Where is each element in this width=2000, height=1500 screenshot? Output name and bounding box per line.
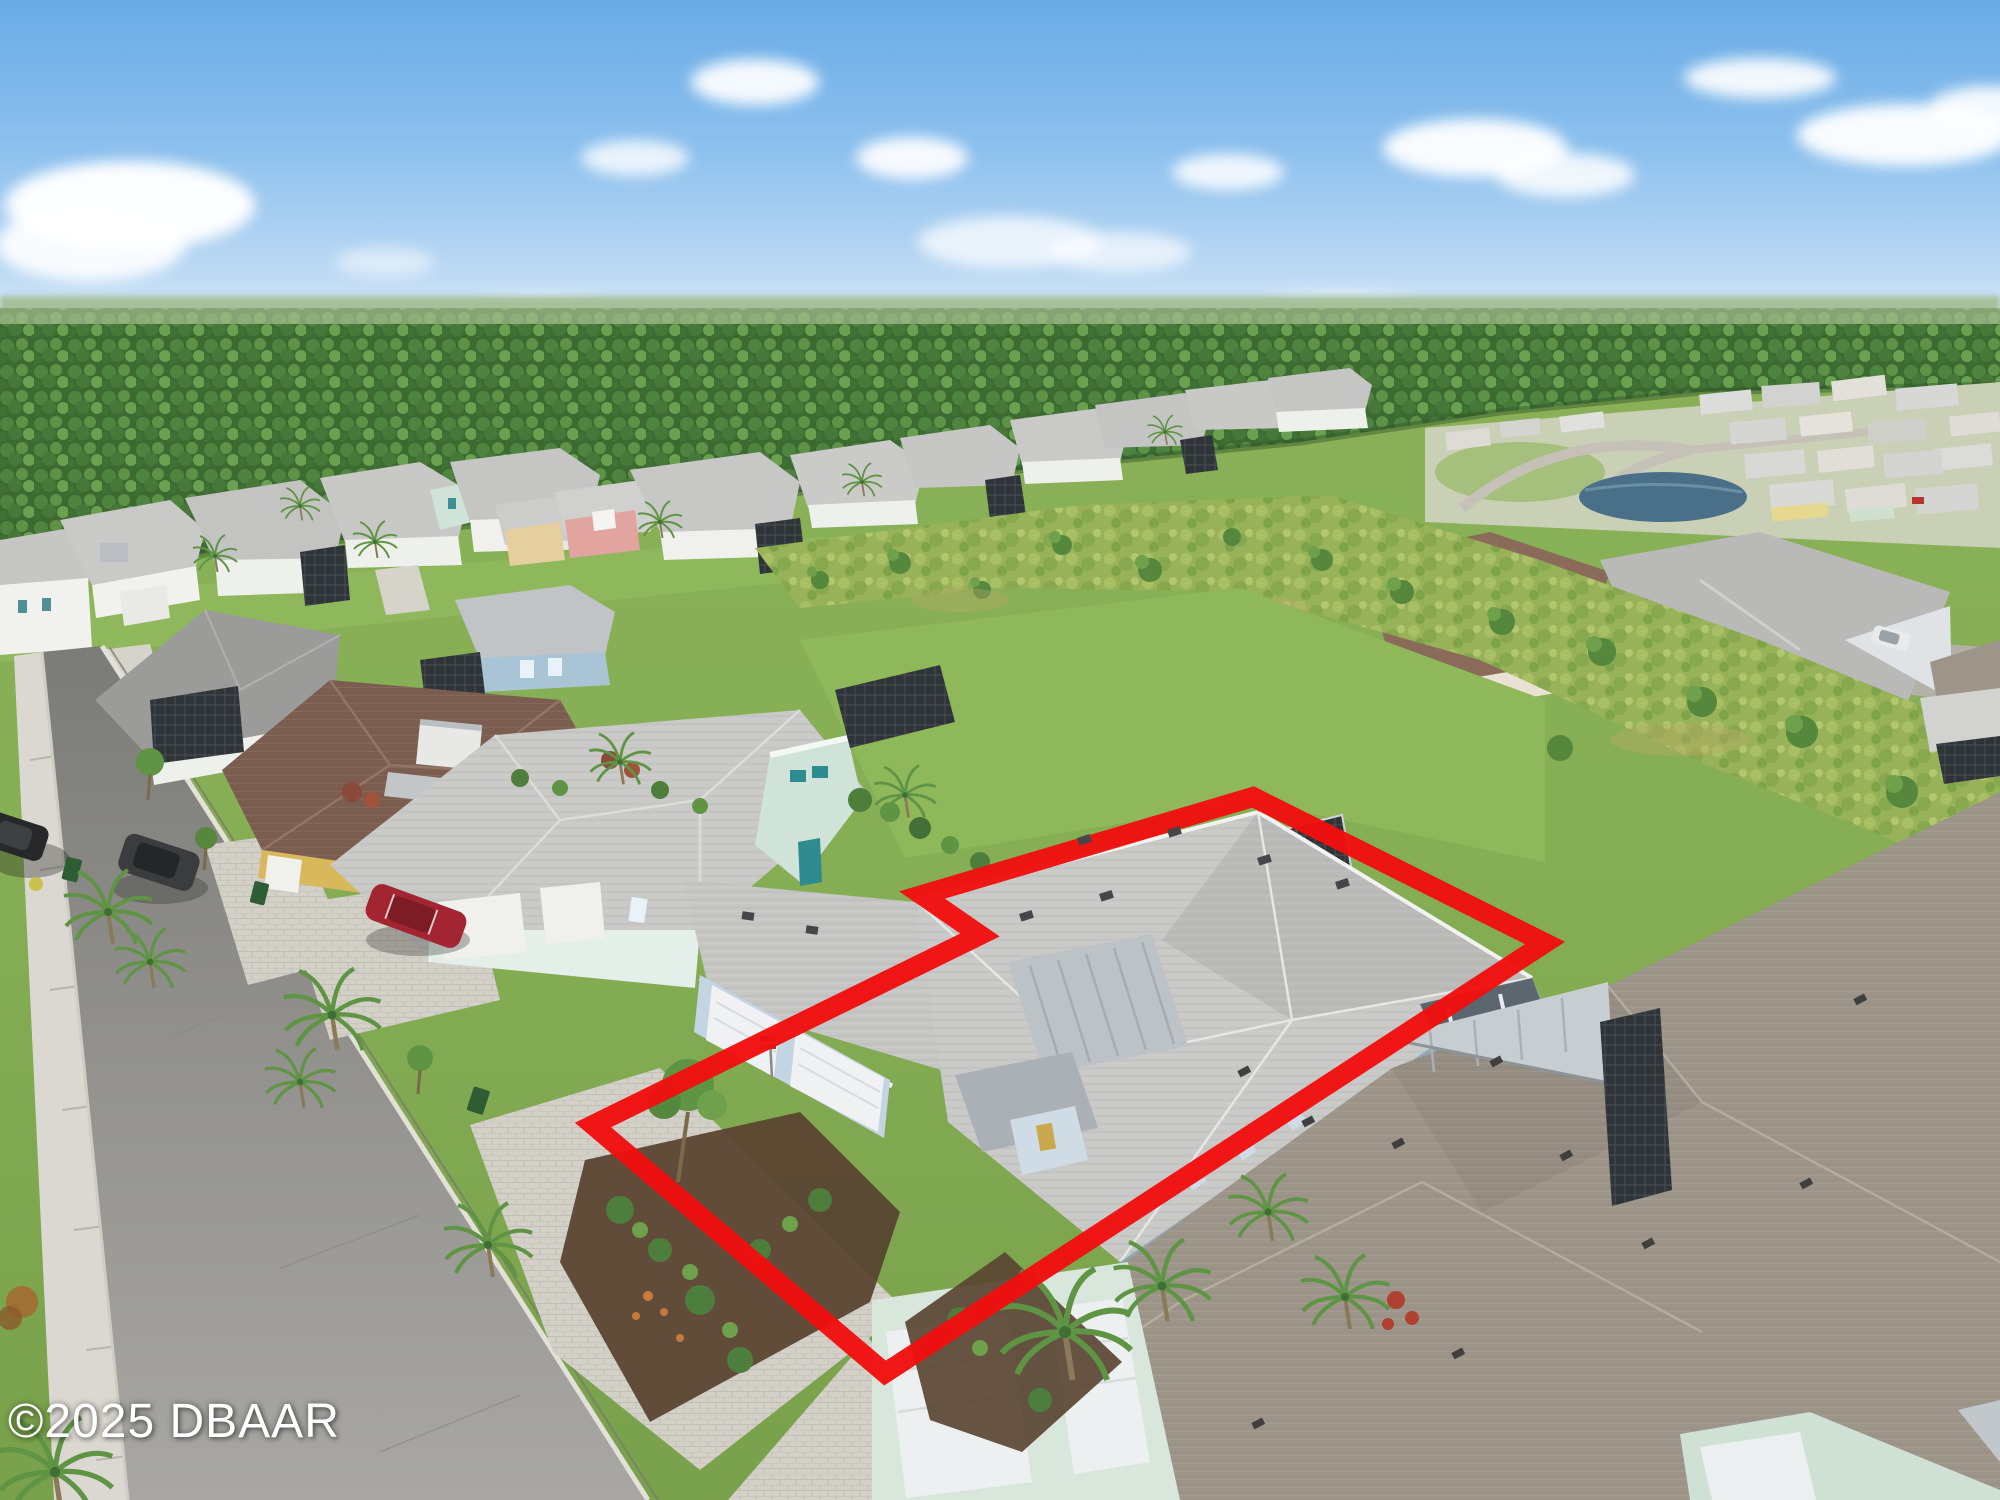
watermark: ©2025 DBAAR [8,1394,340,1449]
sky [0,0,2000,340]
aerial-photo: ©2025 DBAAR [0,0,2000,1500]
scene-graphic [0,0,2000,1500]
pond [1579,472,1747,522]
